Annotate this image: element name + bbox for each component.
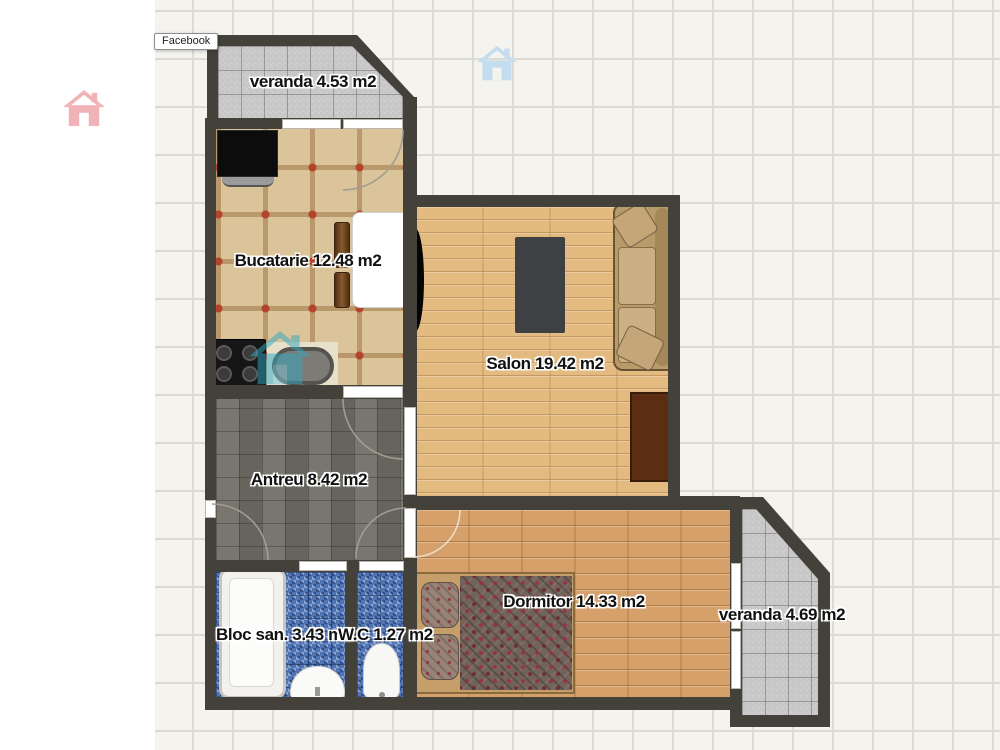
teal-house-icon — [249, 331, 311, 387]
room-label-antreu: Antreu 8.42 m2 — [251, 470, 367, 490]
room-label-wc: W.C 1.27 m2 — [338, 625, 433, 645]
floor-plan-canvas: veranda 4.53 m2 Bucatarie 12.48 m2 Salon… — [0, 0, 1000, 750]
room-label-dormitor: Dormitor 14.33 m2 — [503, 592, 645, 612]
room-label-bucatarie: Bucatarie 12.48 m2 — [235, 251, 382, 271]
room-label-bloc-san: Bloc san. 3.43 m2 — [216, 625, 352, 645]
room-label-veranda-right: veranda 4.69 m2 — [719, 605, 845, 625]
room-label-salon: Salon 19.42 m2 — [486, 354, 603, 374]
room-label-veranda-top: veranda 4.53 m2 — [250, 72, 376, 92]
door-swing-arcs — [0, 0, 1000, 750]
facebook-watermark-tab[interactable]: Facebook — [154, 33, 218, 50]
